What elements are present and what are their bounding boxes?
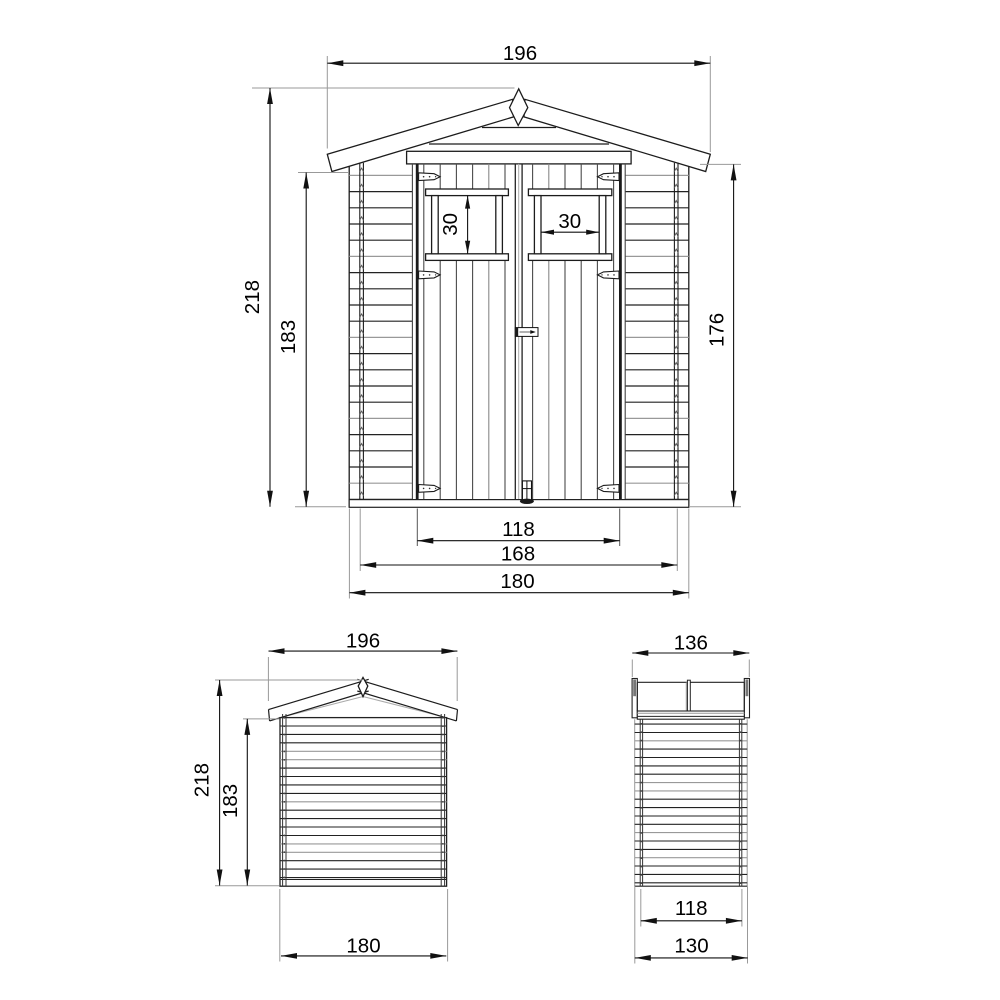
svg-text:218: 218	[190, 763, 213, 797]
svg-text:218: 218	[241, 280, 264, 314]
svg-text:180: 180	[500, 570, 534, 593]
svg-text:176: 176	[705, 313, 728, 347]
svg-text:183: 183	[277, 320, 300, 354]
svg-text:168: 168	[501, 542, 535, 565]
svg-text:130: 130	[674, 934, 708, 957]
svg-text:118: 118	[502, 518, 535, 541]
svg-text:183: 183	[219, 784, 242, 818]
svg-text:196: 196	[346, 630, 380, 653]
svg-text:180: 180	[346, 934, 380, 957]
svg-text:118: 118	[675, 897, 708, 920]
svg-text:30: 30	[558, 210, 581, 233]
svg-text:136: 136	[674, 632, 708, 655]
svg-text:196: 196	[503, 42, 537, 65]
svg-text:30: 30	[439, 213, 462, 236]
